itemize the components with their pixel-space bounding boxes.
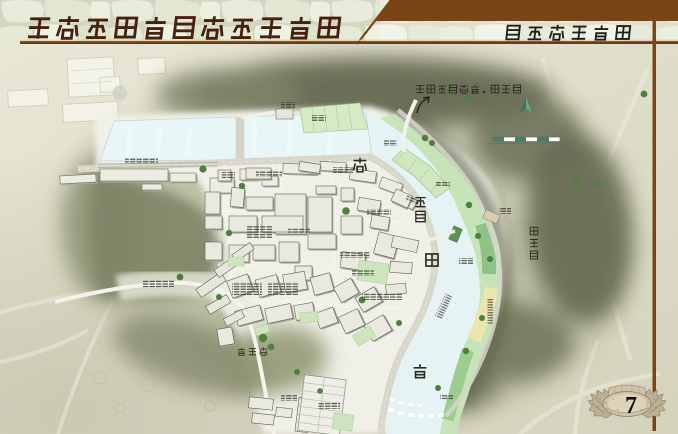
svg-text:7: 7 [625, 393, 637, 419]
